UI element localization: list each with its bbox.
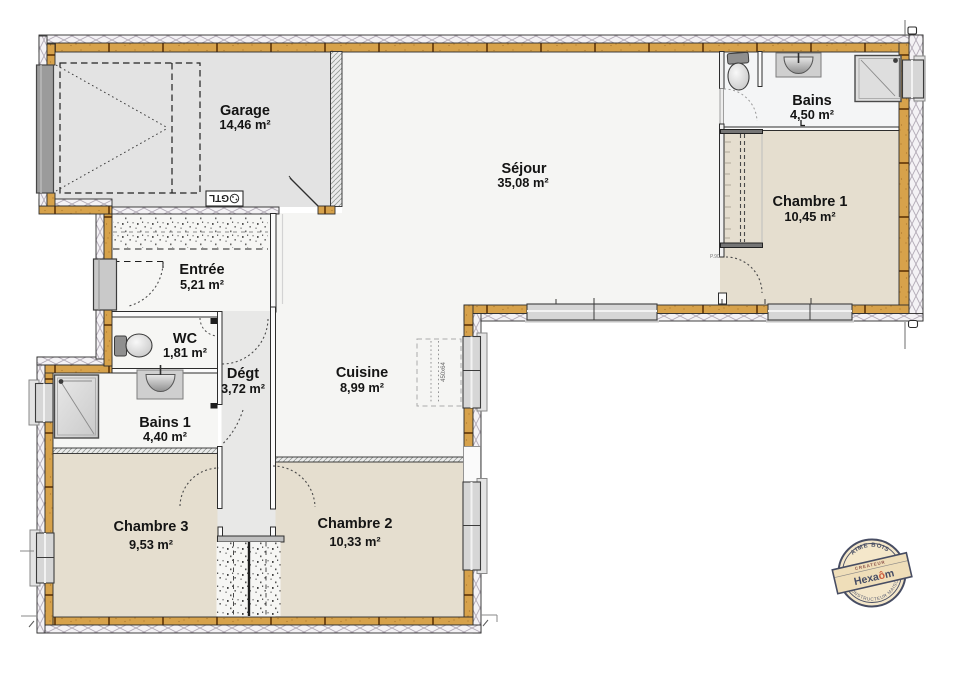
svg-text:10,45 m²: 10,45 m²	[784, 209, 835, 224]
svg-text:Chambre 3: Chambre 3	[114, 519, 189, 535]
svg-text:4,40 m²: 4,40 m²	[143, 429, 187, 444]
svg-text:GTL: GTL	[209, 192, 229, 203]
svg-text:8,99 m²: 8,99 m²	[340, 380, 384, 395]
svg-text:450x64: 450x64	[441, 361, 447, 381]
svg-text:3,72 m²: 3,72 m²	[221, 381, 265, 396]
svg-text:P.90: P.90	[710, 254, 720, 260]
svg-text:9,53 m²: 9,53 m²	[129, 537, 173, 552]
svg-text:Entrée: Entrée	[179, 262, 224, 278]
svg-text:Chambre 2: Chambre 2	[318, 516, 393, 532]
svg-text:Dégt: Dégt	[227, 366, 259, 382]
svg-text:1,81 m²: 1,81 m²	[163, 345, 207, 360]
svg-text:Chambre 1: Chambre 1	[773, 194, 848, 210]
svg-text:10,33 m²: 10,33 m²	[329, 534, 380, 549]
svg-text:14,46 m²: 14,46 m²	[219, 117, 270, 132]
svg-text:4,50 m²: 4,50 m²	[790, 107, 834, 122]
svg-text:5,21 m²: 5,21 m²	[180, 277, 224, 292]
svg-text:35,08 m²: 35,08 m²	[497, 175, 548, 190]
svg-text:Cuisine: Cuisine	[336, 365, 388, 381]
